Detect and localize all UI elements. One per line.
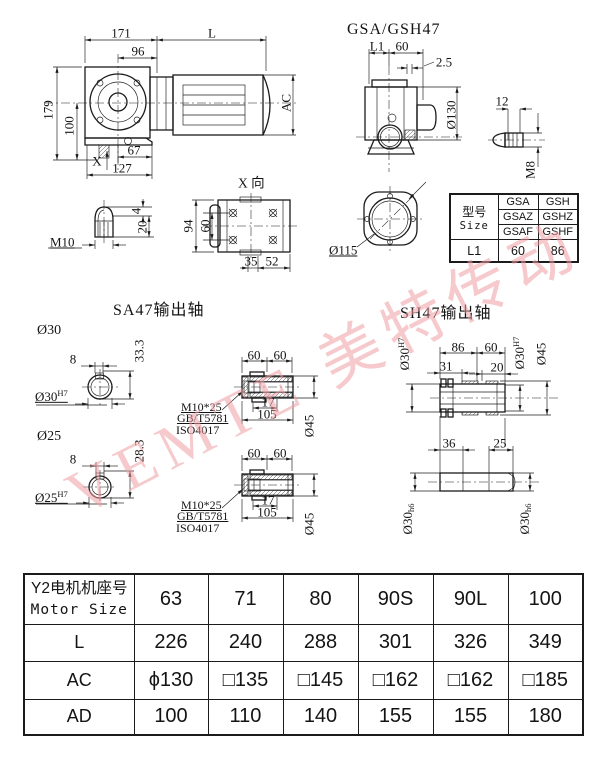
value-cell: 180 <box>508 699 583 735</box>
value-cell: □135 <box>208 661 283 699</box>
sa47-title: SA47输出轴 <box>113 303 204 319</box>
dim-35: 35 <box>245 255 258 268</box>
value-cell: 301 <box>358 624 433 661</box>
table-row: L 226 240 288 301 326 349 <box>24 624 583 661</box>
dim-60-side: 60 <box>396 40 409 53</box>
model-cell: GSHF <box>538 225 578 240</box>
sh47-dim-86: 86 <box>452 341 465 354</box>
value-cell: 155 <box>433 699 508 735</box>
sa47-lower-dim-105: 105 <box>257 506 277 519</box>
value-cell: 140 <box>283 699 358 735</box>
dim-4: 4 <box>130 208 143 215</box>
fit-tolerance: h6 <box>406 504 416 513</box>
fit-tolerance: H7 <box>57 388 67 398</box>
value-cell: 110 <box>208 699 283 735</box>
value-cell: 100 <box>134 699 208 735</box>
fit-value: Ø30 <box>512 347 527 369</box>
sa47-bore30-key-height: 33.3 <box>133 340 146 363</box>
table-row: Y2电机机座号 Motor Size 63 71 80 90S 90L 100 <box>24 574 583 624</box>
sa47-lower-dim-60a: 60 <box>248 447 261 460</box>
sa47-upper-dim-dia45: Ø45 <box>303 415 316 437</box>
sh47-dim-20: 20 <box>491 361 504 374</box>
dim-L1: L1 <box>370 40 384 53</box>
model-cell: GSHZ <box>538 210 578 225</box>
model-cell: GSA <box>498 194 538 210</box>
l1-value-cell: 60 <box>498 240 538 263</box>
motor-size-header-cell: Y2电机机座号 Motor Size <box>24 574 134 624</box>
sa47-lower-dim-60b: 60 <box>274 447 287 460</box>
frame-size-cell: 63 <box>134 574 208 624</box>
sh47-dim-25: 25 <box>494 437 507 450</box>
flange-view-linework <box>357 182 426 252</box>
dim-60-xview: 60 <box>199 220 212 233</box>
table-row: L1 60 86 <box>450 240 578 263</box>
model-cell: GSAF <box>498 225 538 240</box>
value-cell: 326 <box>433 624 508 661</box>
dim-127: 127 <box>112 162 132 175</box>
frame-size-cell: 71 <box>208 574 283 624</box>
fit-tolerance: H7 <box>511 337 521 347</box>
fit-tolerance: H7 <box>57 489 67 499</box>
fit-value: Ø30 <box>397 348 412 370</box>
l1-label-cell: L1 <box>450 240 498 263</box>
value-cell: 349 <box>508 624 583 661</box>
sa47-bore25-fit: Ø25H7 <box>35 490 68 504</box>
value-cell: 288 <box>283 624 358 661</box>
sh47-solid-fit-left: Ø30h6 <box>401 504 416 535</box>
sh47-solid-linework <box>410 416 540 491</box>
sh47-solid-fit-right: Ø30h6 <box>518 504 533 535</box>
sh47-hollow-fit-left: Ø30H7 <box>397 338 411 371</box>
fit-tolerance: h6 <box>523 504 533 513</box>
dim-96: 96 <box>132 45 145 58</box>
dim-12: 12 <box>496 95 509 108</box>
value-cell: □162 <box>433 661 508 699</box>
sh47-hollow-fit-right: Ø30H7 <box>512 337 526 370</box>
dim-AC: AC <box>280 94 293 112</box>
table-row: AC ϕ130 □135 □145 □162 □162 □185 <box>24 661 583 699</box>
spec-table: 型号 Size GSA GSH GSAZ GSHZ GSAF GSHF L1 6… <box>449 193 579 263</box>
sh47-dim-60: 60 <box>485 341 498 354</box>
motor-size-header-en: Motor Size <box>25 600 134 620</box>
dim-94: 94 <box>182 220 195 233</box>
fit-value: Ø30 <box>35 389 57 404</box>
motor-size-header-cn: Y2电机机座号 <box>25 578 134 600</box>
sa47-bore30-label: Ø30 <box>37 324 61 338</box>
model-cell: GSAZ <box>498 210 538 225</box>
x-view-title: X 向 <box>238 176 265 190</box>
fit-value: Ø25 <box>35 490 57 505</box>
value-cell: □185 <box>508 661 583 699</box>
value-cell: 226 <box>134 624 208 661</box>
frame-size-cell: 90L <box>433 574 508 624</box>
fit-tolerance: H7 <box>396 338 406 348</box>
table-row: AD 100 110 140 155 155 180 <box>24 699 583 735</box>
dim-52: 52 <box>266 255 279 268</box>
row-label-AD: AD <box>24 699 134 735</box>
spec-header-cn: 型号 <box>451 203 498 220</box>
dim-67: 67 <box>128 144 141 157</box>
frame-size-cell: 100 <box>508 574 583 624</box>
spec-header-cell: 型号 Size <box>450 194 498 240</box>
dim-L: L <box>208 27 216 40</box>
l1-value-cell: 86 <box>538 240 578 263</box>
frame-size-cell: 90S <box>358 574 433 624</box>
table-row: 型号 Size GSA GSH <box>450 194 578 210</box>
value-cell: 240 <box>208 624 283 661</box>
dim-100: 100 <box>63 116 76 136</box>
x-direction-marker: X <box>92 155 101 168</box>
dim-171: 171 <box>111 27 131 40</box>
dim-2_5: 2.5 <box>436 56 452 69</box>
value-cell: □145 <box>283 661 358 699</box>
dim-M10: M10 <box>50 236 75 249</box>
sa47-bore25-key-height: 28.3 <box>133 440 146 463</box>
value-cell: 155 <box>358 699 433 735</box>
model-cell: GSH <box>538 194 578 210</box>
dim-20: 20 <box>136 221 149 234</box>
sh47-dim-36: 36 <box>443 437 456 450</box>
sa47-upper-dim-60a: 60 <box>248 349 261 362</box>
sa47-upper-dim-105: 105 <box>257 408 277 421</box>
sh47-dim-31: 31 <box>440 360 453 373</box>
side-view-title: GSA/GSH47 <box>347 22 440 38</box>
dim-M8: M8 <box>524 161 537 179</box>
frame-size-cell: 80 <box>283 574 358 624</box>
sa47-upper-std-iso: ISO4017 <box>176 424 219 436</box>
sh47-title: SH47输出轴 <box>400 306 491 322</box>
fit-value: Ø30 <box>400 512 415 534</box>
spec-header-en: Size <box>451 220 498 232</box>
sa47-bore30-fit: Ø30H7 <box>35 389 68 403</box>
dim-dia130: Ø130 <box>445 101 458 130</box>
row-label-AC: AC <box>24 661 134 699</box>
value-cell: □162 <box>358 661 433 699</box>
dim-179: 179 <box>42 100 55 120</box>
row-label-L: L <box>24 624 134 661</box>
sh47-dim-dia45: Ø45 <box>535 343 548 365</box>
value-cell: ϕ130 <box>134 661 208 699</box>
assembly-view-linework <box>44 36 298 179</box>
catalog-page: 171 L 96 179 100 AC 67 127 X GSA/GSH47 L… <box>0 0 600 758</box>
sa47-bore30-key-width: 8 <box>70 353 77 366</box>
sa47-upper-dim-60b: 60 <box>274 349 287 362</box>
sa47-bore25-label: Ø25 <box>37 430 61 444</box>
motor-size-table: Y2电机机座号 Motor Size 63 71 80 90S 90L 100 … <box>23 573 584 736</box>
sa47-lower-dim-dia45: Ø45 <box>303 513 316 535</box>
sa47-lower-std-iso: ISO4017 <box>176 522 219 534</box>
dim-dia115: Ø115 <box>329 244 357 257</box>
fit-value: Ø30 <box>517 512 532 534</box>
sa47-bore25-key-width: 8 <box>70 453 77 466</box>
